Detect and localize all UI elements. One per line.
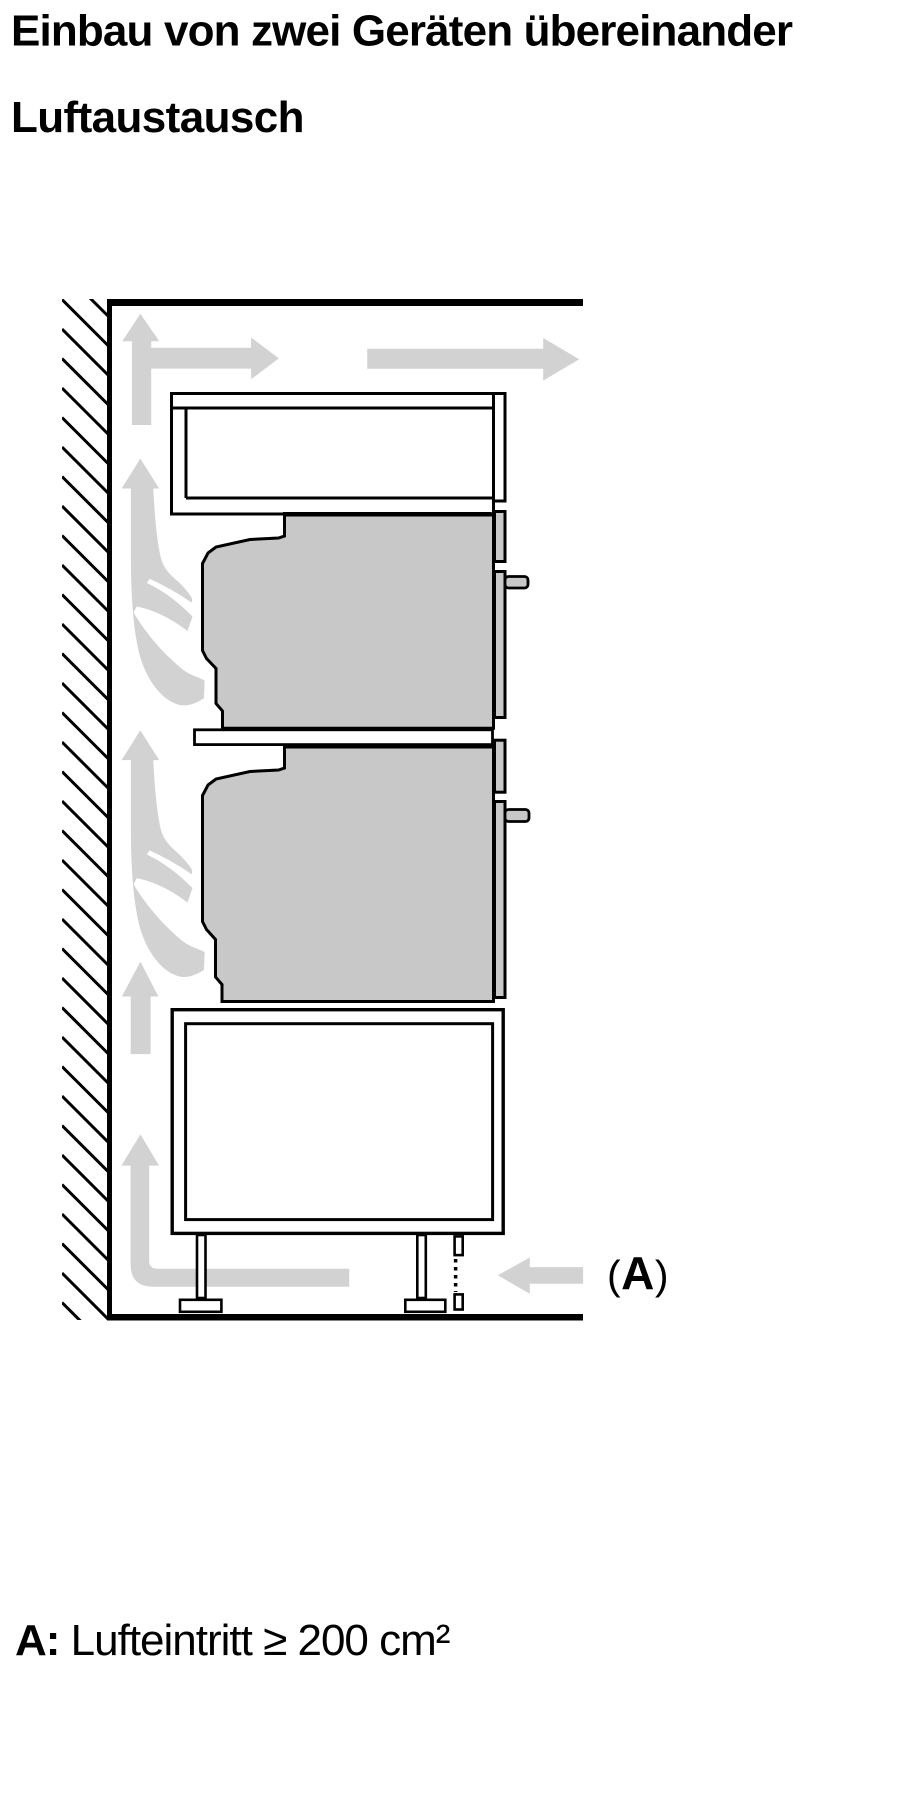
svg-text:Luftaustausch: Luftaustausch (11, 93, 304, 142)
svg-text:(A): (A) (607, 1247, 669, 1299)
svg-text:Einbau von zwei Geräten überei: Einbau von zwei Geräten übereinander (11, 7, 793, 56)
svg-text:A: Lufteintritt ≥ 200 cm²: A: Lufteintritt ≥ 200 cm² (15, 1616, 450, 1665)
